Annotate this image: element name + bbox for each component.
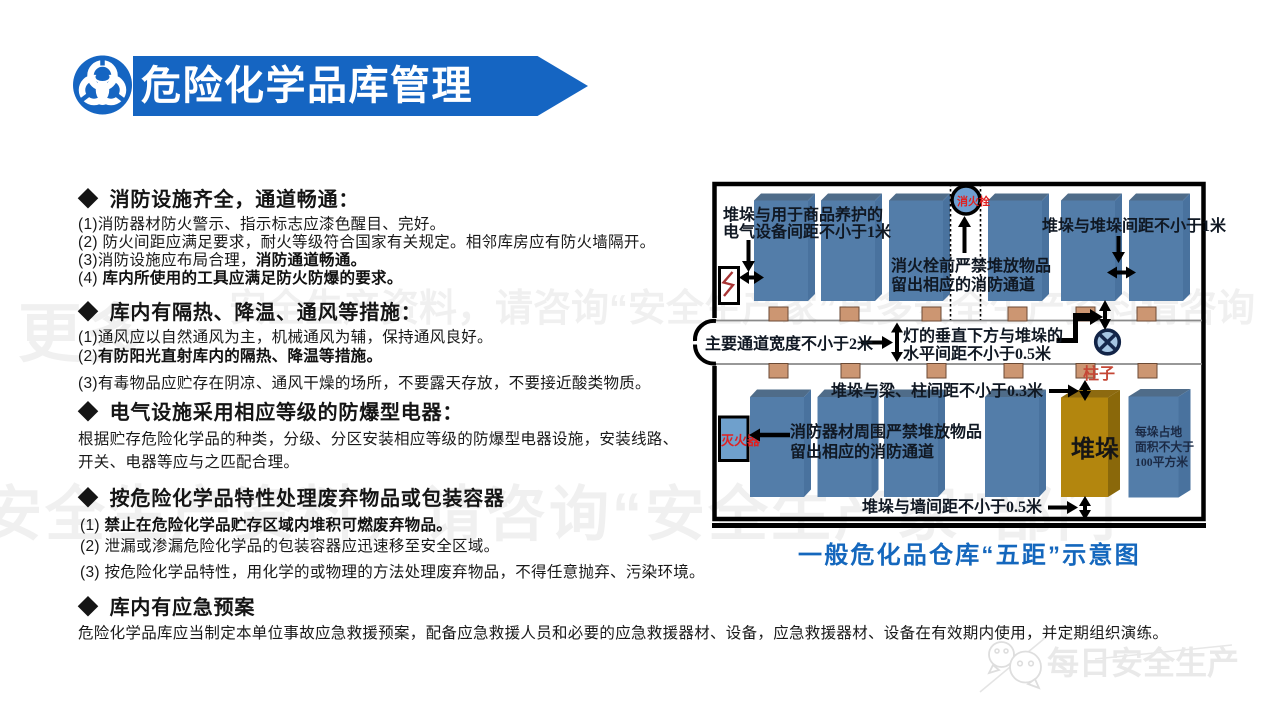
svg-text:每垛占地: 每垛占地 <box>1135 425 1182 439</box>
svg-text:堆垛与墙间距不小于0.5米: 堆垛与墙间距不小于0.5米 <box>862 497 1043 516</box>
svg-text:消火栓: 消火栓 <box>957 194 990 208</box>
svg-text:灯的垂直下方与堆垛的: 灯的垂直下方与堆垛的 <box>903 326 1063 345</box>
svg-text:堆垛与用于商品养护的: 堆垛与用于商品养护的 <box>723 205 883 224</box>
svg-text:留出相应的消防通道: 留出相应的消防通道 <box>790 442 934 461</box>
svg-text:每日安全生产: 每日安全生产 <box>1047 645 1239 681</box>
svg-text:水平间距不小于0.5米: 水平间距不小于0.5米 <box>903 344 1052 363</box>
svg-text:电气设备间距不小于1米: 电气设备间距不小于1米 <box>723 222 892 241</box>
svg-text:柱子: 柱子 <box>1083 364 1115 383</box>
svg-text:消防器材周围严禁堆放物品: 消防器材周围严禁堆放物品 <box>790 422 982 441</box>
svg-text:消火栓前严禁堆放物品: 消火栓前严禁堆放物品 <box>891 256 1051 275</box>
svg-text:堆垛: 堆垛 <box>1071 436 1119 463</box>
svg-text:100平方米: 100平方米 <box>1135 455 1188 469</box>
svg-text:主要通道宽度不小于2米: 主要通道宽度不小于2米 <box>705 334 874 353</box>
svg-text:堆垛与梁、柱间距不小于0.3米: 堆垛与梁、柱间距不小于0.3米 <box>831 381 1044 400</box>
svg-text:面积不大于: 面积不大于 <box>1135 440 1194 454</box>
svg-text:留出相应的消防通道: 留出相应的消防通道 <box>891 275 1035 294</box>
svg-text:堆垛与堆垛间距不小于1米: 堆垛与堆垛间距不小于1米 <box>1042 216 1227 235</box>
